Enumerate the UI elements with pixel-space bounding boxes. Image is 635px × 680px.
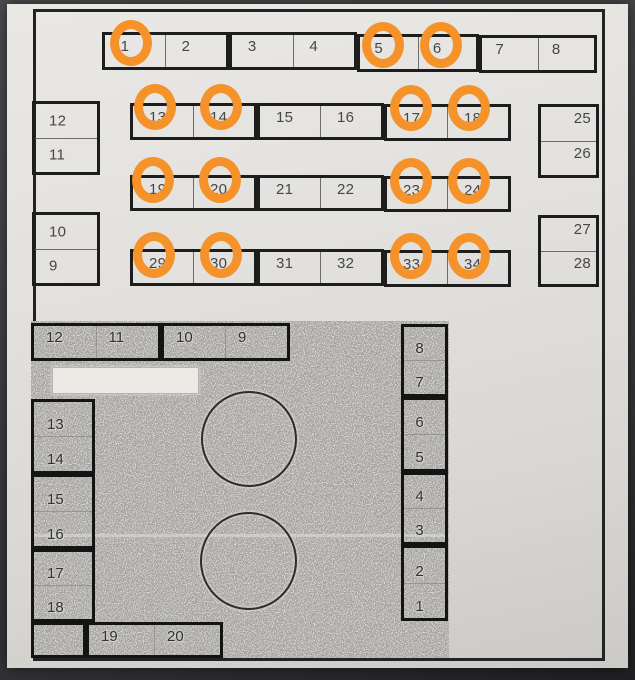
seat-number: 2 [404, 563, 435, 580]
seat-8: 8 [538, 38, 595, 70]
seat-number: 20 [167, 628, 184, 645]
seat-10-left: 10 [35, 215, 97, 249]
seat-number: 32 [337, 255, 354, 272]
plan-group-19-20: 19 20 [86, 622, 223, 658]
plan-group-2-1: 2 1 [401, 545, 448, 621]
seat-12-left: 12 [35, 104, 97, 138]
seat-number: 8 [529, 41, 585, 58]
seat-number: 2 [156, 38, 216, 55]
seat-21: 21 [260, 178, 320, 208]
seat-number: 9 [49, 258, 58, 275]
highlight-ring-6 [420, 22, 462, 68]
seat-number: 4 [404, 488, 435, 505]
plan-seat-16: 16 [34, 511, 92, 546]
plan-seat-8: 8 [404, 327, 445, 360]
desk-group-7-8: 7 8 [479, 35, 597, 73]
seat-number: 9 [238, 329, 246, 346]
seat-number: 22 [337, 181, 354, 198]
seat-number: 18 [47, 599, 64, 616]
seat-16: 16 [320, 106, 381, 137]
seat-number: 19 [101, 628, 118, 645]
seat-number: 10 [176, 329, 193, 346]
desk-group-27-28: 27 28 [538, 215, 599, 287]
seat-number: 11 [49, 147, 65, 164]
desk-group-21-22: 21 22 [257, 175, 384, 211]
seat-32: 32 [320, 252, 381, 283]
plan-seat-1: 1 [404, 583, 445, 619]
plan-seat-2: 2 [404, 548, 445, 583]
seat-4: 4 [293, 35, 355, 67]
seat-28: 28 [541, 251, 596, 285]
plan-group-10-9: 10 9 [161, 323, 290, 361]
seat-number: 12 [49, 112, 66, 129]
seat-27: 27 [541, 218, 596, 251]
highlight-ring-24 [448, 158, 490, 204]
seat-15: 15 [260, 106, 320, 137]
plan-seat-6: 6 [404, 400, 445, 434]
desk-group-31-32: 31 32 [257, 249, 384, 286]
seat-number: 7 [472, 41, 528, 58]
highlight-ring-34 [448, 233, 490, 279]
plan-bottom-empty-box [31, 622, 86, 658]
seat-number: 25 [574, 110, 591, 127]
highlight-ring-1 [110, 20, 152, 66]
seat-number: 16 [47, 526, 64, 543]
seat-number: 31 [276, 255, 293, 272]
seat-number: 1 [404, 598, 435, 615]
desk-group-25-26: 25 26 [538, 104, 599, 178]
seat-number: 17 [47, 565, 64, 582]
seat-number: 3 [404, 522, 435, 539]
blank-label-box [52, 367, 199, 394]
plan-group-12-11: 12 11 [31, 323, 161, 361]
plan-seat-4: 4 [404, 475, 445, 508]
seat-number: 6 [404, 414, 435, 431]
plan-group-15-16: 15 16 [31, 474, 95, 549]
seat-number: 5 [404, 449, 435, 466]
seat-2: 2 [165, 35, 226, 67]
highlight-ring-17 [390, 85, 432, 131]
highlight-ring-5 [362, 22, 404, 68]
plan-seat-20: 20 [154, 625, 220, 655]
plan-seat-10: 10 [164, 326, 225, 358]
seat-number: 14 [47, 451, 64, 468]
seat-number: 13 [47, 416, 64, 433]
plan-seat-14: 14 [34, 436, 92, 471]
plan-seat-12: 12 [34, 326, 96, 358]
highlight-ring-33 [390, 233, 432, 279]
seat-number: 8 [404, 340, 435, 357]
highlight-ring-23 [390, 158, 432, 204]
plan-seat-18: 18 [34, 585, 92, 619]
plan-seat-3: 3 [404, 508, 445, 542]
plan-group-13-14: 13 14 [31, 399, 95, 474]
highlight-ring-30 [200, 232, 242, 278]
desk-group-3-4: 3 4 [229, 32, 357, 70]
plan-seat-19: 19 [89, 625, 154, 655]
plan-group-4-3: 4 3 [401, 472, 448, 545]
seat-25: 25 [541, 107, 596, 141]
plan-seat-7: 7 [404, 360, 445, 394]
seat-number: 21 [276, 181, 293, 198]
plan-group-17-18: 17 18 [31, 549, 95, 622]
plan-seat-5: 5 [404, 434, 445, 469]
plan-seat-17: 17 [34, 552, 92, 585]
seat-number: 15 [47, 491, 64, 508]
seat-26: 26 [541, 141, 596, 176]
seat-number: 7 [404, 374, 435, 391]
plan-group-6-5: 6 5 [401, 397, 448, 472]
seat-11-left: 11 [35, 138, 97, 173]
plan-group-8-7: 8 7 [401, 324, 448, 397]
paper-sheet: 1 2 3 4 5 6 7 8 13 14 15 16 17 18 [7, 4, 628, 668]
seat-number: 3 [222, 38, 283, 55]
plan-empty-cell [34, 625, 83, 655]
seat-number: 10 [49, 223, 66, 240]
seat-number: 26 [574, 145, 591, 162]
seat-number: 11 [109, 329, 125, 346]
seat-9-left: 9 [35, 249, 97, 284]
plan-seat-9: 9 [225, 326, 287, 358]
desk-group-12-11: 12 11 [32, 101, 100, 175]
seat-number: 28 [574, 255, 591, 272]
round-table-1 [201, 391, 297, 487]
seat-number: 4 [284, 38, 345, 55]
highlight-ring-29 [133, 232, 175, 278]
highlight-ring-20 [199, 157, 241, 203]
plan-seat-13: 13 [34, 402, 92, 436]
highlight-ring-18 [448, 85, 490, 131]
desk-group-10-9: 10 9 [32, 212, 100, 286]
plan-seat-11: 11 [96, 326, 159, 358]
desk-group-15-16: 15 16 [257, 103, 384, 140]
seat-22: 22 [320, 178, 381, 208]
seat-31: 31 [260, 252, 320, 283]
seat-number: 16 [337, 109, 354, 126]
highlight-ring-13 [134, 84, 176, 130]
seat-number: 27 [574, 221, 591, 238]
seat-number: 15 [276, 109, 293, 126]
seat-number: 12 [46, 329, 63, 346]
photo-background: 1 2 3 4 5 6 7 8 13 14 15 16 17 18 [0, 0, 635, 680]
plan-seat-15: 15 [34, 477, 92, 511]
highlight-ring-19 [132, 157, 174, 203]
round-table-2 [200, 512, 297, 610]
highlight-ring-14 [200, 84, 242, 130]
